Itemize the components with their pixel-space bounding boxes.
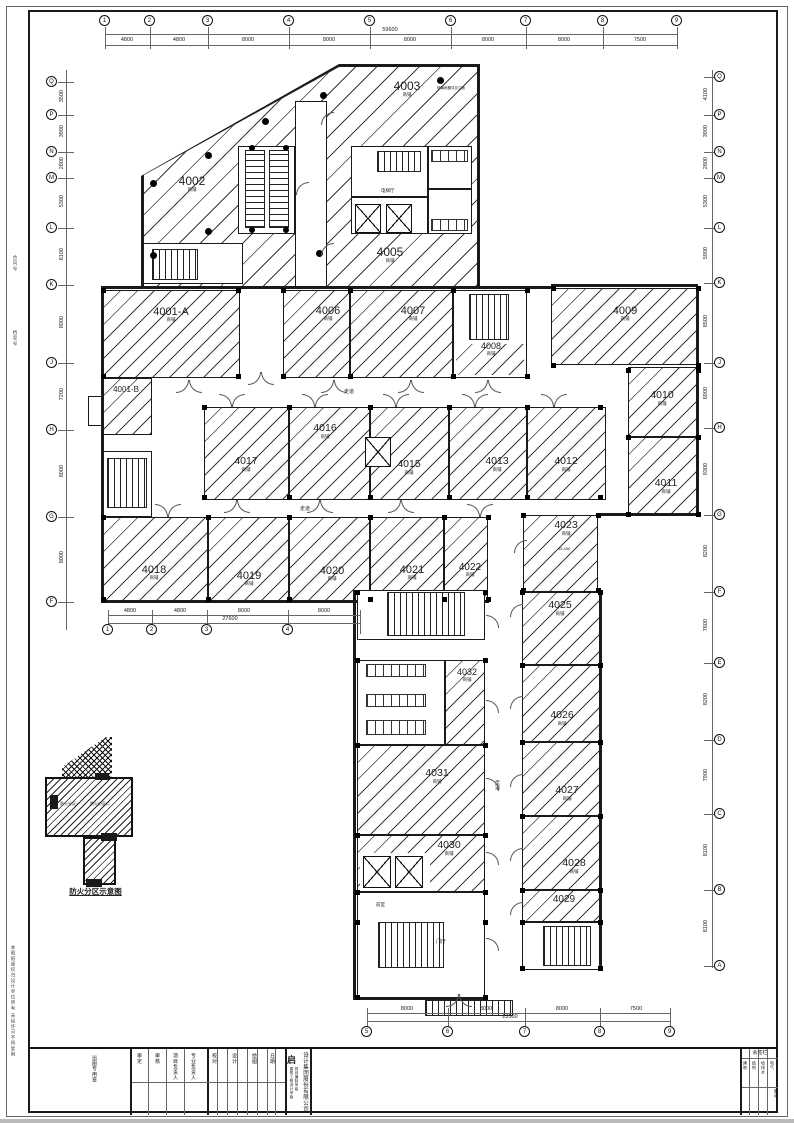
dim-line-top [105,45,678,46]
dim-wing-4: 7500 [630,1006,642,1012]
grid-bubble-row-r1: Q [714,71,725,82]
wc-row-3 [366,720,426,735]
room-label-4026: 4026商铺 [550,710,573,726]
wc-partition [428,188,472,190]
tb-sign-col-label-4: 电气 [769,1061,775,1070]
stair-wing-br [543,926,591,966]
room-4016 [289,407,370,500]
dim-left-2: 3900 [59,125,65,137]
room-4028 [522,816,602,890]
door-pair-11 [224,500,250,513]
room-4017 [204,407,289,500]
tb-company-name: 设计集团股份有限公司 [301,1052,309,1112]
dim-left-7: 7200 [59,388,65,400]
note-4003: 玻璃雨棚详见立面 [437,86,467,91]
grid-bubble-row-l9: G [46,511,57,522]
tb-field-4: 专业负责人 [190,1053,197,1081]
room-label-4023: 4023商铺 [554,520,577,536]
tb-cert-2: 规划编制甲级 [295,1067,300,1091]
dim-mid-2: 4800 [174,608,186,614]
grid-bubble-row-r6: K [714,277,725,288]
margin-note-contract: 合同号 [12,255,18,272]
dim-mid-3: 8000 [238,608,250,614]
key-plan: 防火分区一 防火分区二 防火分区示意图 [38,733,153,898]
frame-inner-left [28,10,30,1113]
key-blob-3 [101,833,117,841]
door-pair-6 [219,394,245,407]
grid-bubble-wing-5: 5 [361,1026,372,1037]
room-4011 [628,437,698,515]
door-4030 [486,852,499,865]
tb-stamp-cell: 出图专用章 [91,1055,98,1083]
room-label-4001B: 4001-B [113,386,139,395]
grid-bubble-col-7: 7 [520,15,531,26]
door-pair-1 [176,380,202,393]
dim-right-4: 5300 [703,195,709,207]
door-4023 [514,540,527,553]
grid-bubble-mid-1: 1 [102,624,113,635]
dim-left-3: 2800 [59,157,65,169]
wc-row-2 [366,694,426,707]
door-pair-10 [541,394,567,407]
wall-seg-6 [598,513,698,516]
dim-top-2: 4800 [173,37,185,43]
dim-right-1: 4100 [703,88,709,100]
key-blob-1 [50,795,58,809]
room-label-4027: 4027商铺 [555,785,578,801]
dim-right-2: 3900 [703,125,709,137]
room-label-4021: 4021商铺 [400,564,424,581]
key-plan-main [45,777,133,837]
grid-bubble-row-r11: E [714,657,725,668]
wall-seg-1 [101,286,145,289]
wall-wing-left [353,590,356,1000]
grid-bubble-row-l7: J [46,357,57,368]
dim-left-6: 8000 [59,316,65,328]
grid-bubble-row-l4: M [46,172,57,183]
dim-wing-2: 8000 [480,1006,492,1012]
grid-bubble-row-r2: P [714,109,725,120]
key-blob-2 [95,773,109,780]
dim-mid-1: 4800 [124,608,136,614]
grid-bubble-mid-3: 3 [201,624,212,635]
dim-left-9: 8000 [59,551,65,563]
wc-row-1 [366,664,426,677]
margin-note-copyright: 本图纸版权归设计单位所有 未经许可不得复制 [10,945,16,1110]
room-label-4012: 4012商铺 [554,456,577,472]
stair-4008 [469,294,509,340]
grid-bubble-row-r9: G [714,509,725,520]
grid-bubble-col-4: 4 [283,15,294,26]
tb-hsplit [132,1082,285,1083]
room-4009 [551,288,698,365]
tb-sign-hline [742,1087,778,1088]
grid-bubble-row-r12: D [714,734,725,745]
dim-mid-4: 8000 [318,608,330,614]
dim-top-8: 7500 [634,37,646,43]
door-pair-3 [398,380,424,393]
tb-field-3: 项目负责人 [172,1053,179,1081]
door-pair-15 [467,504,493,517]
dim-right-13: 8100 [703,844,709,856]
stair-wing-top [387,592,465,636]
grid-bubble-row-r15: A [714,960,725,971]
column-markers [101,288,106,293]
grid-bubble-wing-9: 9 [664,1026,675,1037]
tb-field-7: 绘图 [251,1053,258,1064]
elevator-1 [355,204,381,233]
tb-sign-col-label-3: 给排水 [760,1061,766,1075]
escalator-2 [269,150,289,228]
door-pair-13 [388,500,414,513]
door-4026 [510,696,523,709]
door-pair-2 [321,380,347,393]
door-4025 [510,604,523,617]
drawing-sheet: 合同号 档案号 本图纸版权归设计单位所有 未经许可不得复制 1 2 3 4 5 … [0,0,794,1123]
escalator-end-dots [249,145,255,151]
dim-left-5: 6100 [59,248,65,260]
grid-bubble-row-l2: P [46,109,57,120]
door-pair-7 [302,394,328,407]
room-4019 [208,517,289,602]
tb-divider-4 [310,1049,312,1115]
dim-right-5: 5900 [703,247,709,259]
grid-bubble-row-r8: H [714,422,725,433]
room-4031 [357,745,485,835]
dim-line-top-total [105,34,678,35]
door-lobby [486,938,499,951]
sheet-edge [0,1119,794,1123]
room-label-4003: 4003商铺 [394,80,421,98]
room-label-4019: 4019商铺 [237,570,261,587]
room-label-4009: 4009商铺 [613,305,637,322]
elevator-2 [386,204,412,233]
door-4028 [510,848,523,861]
room-label-4007: 4007商铺 [401,305,425,322]
door-pair-8 [383,394,409,407]
frame-inner-right [776,10,778,1113]
grid-bubble-wing-6: 6 [442,1026,453,1037]
dim-top-1: 4800 [121,37,133,43]
elev-mark-4023: 45.450 [558,546,570,551]
dim-wing-total: 23500 [502,1014,517,1020]
room-4001A [103,290,240,378]
tb-sign-col-label-2: 结构 [751,1061,757,1070]
door-pair-12 [307,500,333,513]
room-label-4018: 4018商铺 [142,564,166,581]
room-4018 [103,517,208,602]
room-label-4002: 4002商铺 [179,175,206,193]
door-pair-5 [248,372,274,385]
grid-bubble-col-1: 1 [99,15,110,26]
dim-left-4: 5300 [59,195,65,207]
grid-bubble-col-9: 9 [671,15,682,26]
tb-sign-col-1 [749,1049,750,1115]
room-label-4030: 4030商铺 [437,840,460,856]
grid-bubble-row-r10: F [714,586,725,597]
tb-field-5: 校对 [211,1053,218,1064]
dim-top-6: 8000 [482,37,494,43]
dim-right-9: 8200 [703,545,709,557]
grid-bubble-row-l3: N [46,146,57,157]
dim-ticks-left [58,82,74,83]
room-4006 [283,290,350,378]
tb-field-1: 审定 [136,1053,143,1064]
frame-outer-bottom [6,1116,788,1117]
margin-note-archive: 档案号 [12,330,18,347]
wall-seg-2 [477,286,553,289]
grid-bubble-row-r13: C [714,808,725,819]
door-pair-9 [462,394,488,407]
dim-top-total: 59600 [382,27,397,33]
wc-fixtures-1 [431,150,468,162]
elev-lobby-label: 电梯厅 [381,188,395,194]
shaft-island [365,437,391,467]
grid-bubble-col-3: 3 [202,15,213,26]
room-label-4015: 4015商铺 [397,459,420,475]
stair-left [107,458,147,508]
frame-inner-top [28,10,778,12]
dim-right-6: 8500 [703,315,709,327]
elevator-4 [395,856,423,888]
room-label-4020: 4020商铺 [320,565,344,582]
door-4027 [510,774,523,787]
dim-top-5: 8000 [404,37,416,43]
key-zone1-label: 防火分区一 [60,801,80,807]
core-stair [377,151,421,172]
grid-bubble-row-l6: K [46,279,57,290]
elevator-3 [363,856,391,888]
dim-left-8: 8000 [59,465,65,477]
dim-right-7: 6900 [703,387,709,399]
room-4012 [527,407,606,500]
grid-bubble-col-5: 5 [364,15,375,26]
room-label-4016: 4016商铺 [313,423,336,439]
vestibule-label: 前室 [376,902,385,908]
dim-line-mid-total [108,623,360,624]
key-zone2-label: 防火分区二 [90,801,110,807]
dim-wing-3: 8000 [556,1006,568,1012]
grid-line-left [66,70,67,630]
dim-right-3: 2800 [703,157,709,169]
top-block-stair [152,249,198,280]
wc-fixtures-2 [431,219,468,231]
tb-field-8: 日期 [269,1053,276,1064]
dim-right-11: 8200 [703,693,709,705]
tb-field-6: 设计 [231,1053,238,1064]
dim-ticks-top [105,27,106,49]
grid-bubble-col-2: 2 [144,15,155,26]
grid-bubble-row-r7: J [714,357,725,368]
dim-right-12: 7900 [703,769,709,781]
tb-company-logo: 启 [287,1053,296,1066]
dim-right-10: 7600 [703,619,709,631]
grid-bubble-row-l8: H [46,424,57,435]
room-label-4032: 4032商铺 [457,668,477,683]
tb-sign-col-label-5: 暖通 [773,1089,779,1098]
door-4029 [510,902,523,915]
dim-wing-1: 8000 [401,1006,413,1012]
dim-right-14: 8100 [703,920,709,932]
tb-sign-col-label-1: 建筑 [742,1061,748,1070]
room-label-4025: 4025商铺 [548,600,571,616]
door-stair-wing [486,615,499,628]
grid-bubble-col-6: 6 [445,15,456,26]
room-label-4006: 4006商铺 [316,305,340,322]
grid-bubble-mid-2: 2 [146,624,157,635]
door-wc-wing [486,700,499,713]
grid-line-right [712,70,713,968]
room-4027 [522,742,602,816]
room-label-4011: 4011商铺 [655,478,678,494]
room-label-4010: 4010商铺 [650,390,673,406]
key-plan-stem [83,837,116,885]
room-label-4013: 4013商铺 [485,456,508,472]
grid-bubble-row-r14: B [714,884,725,895]
room-label-4008: 4008商铺 [481,342,501,357]
room-label-4028: 4028商铺 [562,858,585,874]
tb-sign-col-2 [758,1049,759,1115]
grid-bubble-mid-4: 4 [282,624,293,635]
dim-line-wing-total [367,1021,670,1022]
dim-top-7: 8000 [558,37,570,43]
wall-wing-right [599,590,602,971]
frame-outer-left [6,6,7,1116]
dim-top-4: 8000 [323,37,335,43]
grid-bubble-row-l10: F [46,596,57,607]
dim-line-wing [367,1013,670,1014]
grid-bubble-row-r5: L [714,222,725,233]
round-column-dots [150,180,157,187]
room-4007 [350,290,453,378]
door-pair-4 [475,380,501,393]
wall-seg-5 [696,286,699,515]
dim-top-3: 8000 [242,37,254,43]
room-label-4001A: 4001-A商铺 [153,306,188,323]
wall-seg-3 [551,284,698,287]
dim-right-8: 9300 [703,463,709,475]
tb-sign-title: 会签栏 [742,1049,778,1059]
room-4013 [449,407,527,500]
frame-outer-top [6,6,788,7]
grid-bubble-row-r4: M [714,172,725,183]
room-label-4029: 4029 [553,894,575,905]
grid-bubble-row-r3: N [714,146,725,157]
lobby-label: 门厅 [436,938,446,945]
stair-lobby [378,922,444,968]
room-4026 [522,665,602,742]
dim-left-1: 3500 [59,90,65,102]
room-label-4017: 4017商铺 [234,456,257,472]
room-label-4005: 4005商铺 [377,246,404,264]
tb-sign-col-3 [767,1049,768,1115]
core-partition [351,196,428,198]
grid-bubble-row-l1: Q [46,76,57,87]
grid-bubble-col-8: 8 [597,15,608,26]
dim-mid-total: 27600 [222,616,237,622]
tb-field-2: 审核 [154,1053,161,1064]
frame-outer-right [787,6,788,1116]
wall-seg-4 [101,288,104,602]
title-block: 出图专用章 审定 审核 项目负责人 专业负责人 校对 设计 绘图 日期 启 建筑… [28,1047,778,1113]
grid-bubble-wing-7: 7 [519,1026,530,1037]
room-label-4031: 4031商铺 [425,768,448,784]
grid-bubble-wing-8: 8 [594,1026,605,1037]
key-plan-caption: 防火分区示意图 [38,886,153,897]
grid-bubble-row-l5: L [46,222,57,233]
door-entrance [446,994,472,1007]
door-pair-14 [155,504,181,517]
escalator-1 [245,150,265,228]
room-label-4022: 4022商铺 [459,562,481,578]
